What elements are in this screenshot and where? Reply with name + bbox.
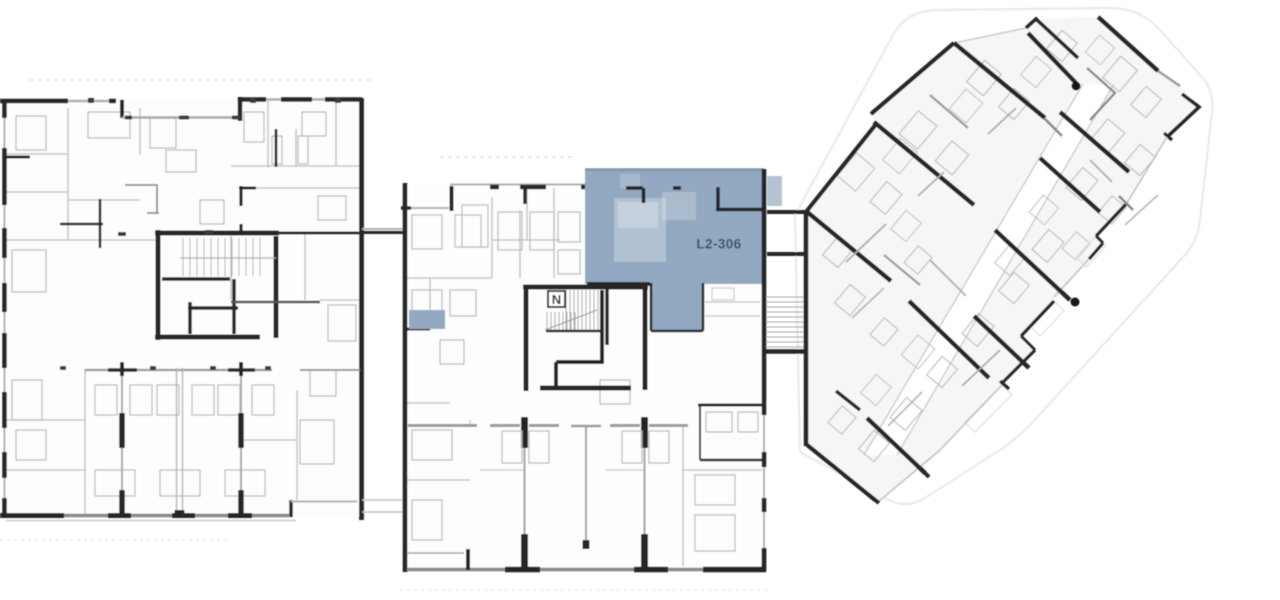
svg-text:L2-306: L2-306 [696,237,741,252]
svg-text:N: N [552,292,561,307]
